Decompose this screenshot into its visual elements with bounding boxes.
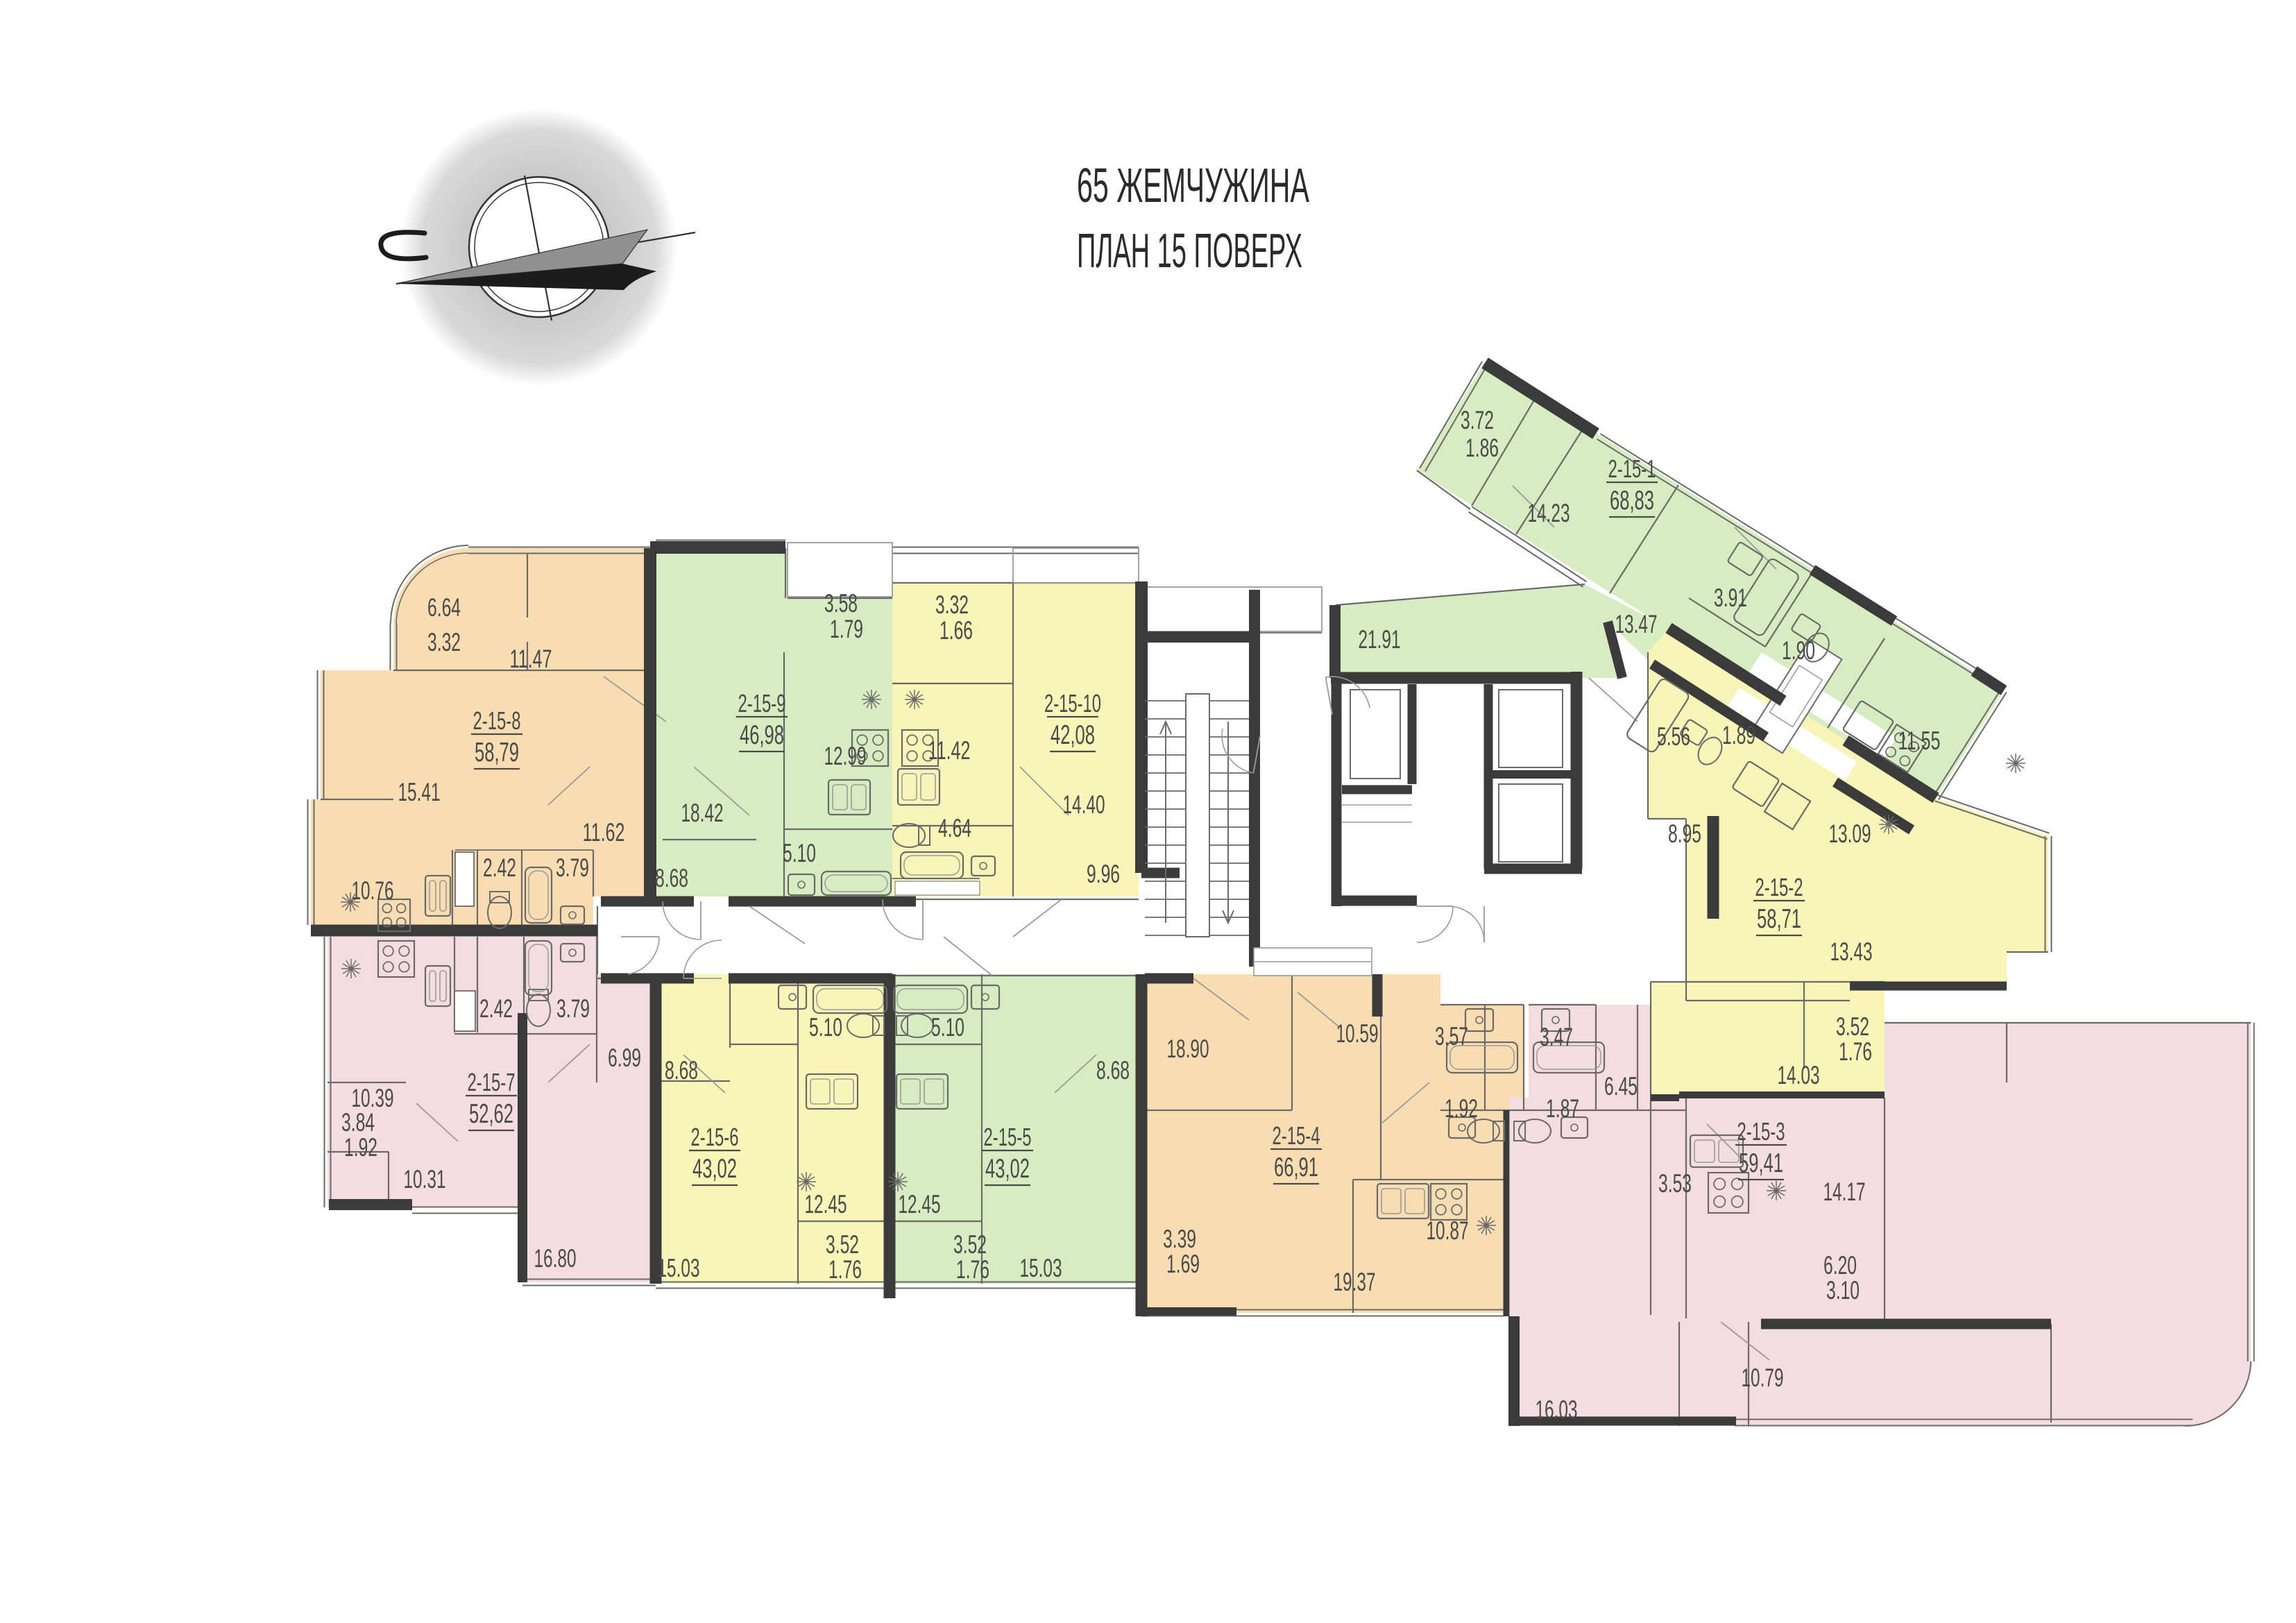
svg-text:6.64: 6.64 (427, 593, 461, 622)
svg-text:2-15-6: 2-15-6 (691, 1123, 739, 1151)
svg-text:43,02: 43,02 (985, 1154, 1030, 1184)
svg-text:15.03: 15.03 (1020, 1254, 1062, 1282)
svg-text:2-15-9: 2-15-9 (738, 689, 786, 717)
svg-text:11.62: 11.62 (583, 818, 625, 847)
svg-text:3.10: 3.10 (1826, 1276, 1860, 1305)
svg-text:12.45: 12.45 (805, 1190, 847, 1218)
svg-text:18.90: 18.90 (1167, 1035, 1209, 1063)
svg-text:12.45: 12.45 (899, 1190, 941, 1218)
svg-text:46,98: 46,98 (740, 720, 784, 750)
svg-text:8.68: 8.68 (1096, 1056, 1130, 1085)
svg-text:2-15-10: 2-15-10 (1044, 689, 1101, 717)
svg-text:59,41: 59,41 (1739, 1148, 1783, 1178)
svg-text:10.31: 10.31 (404, 1165, 446, 1193)
svg-text:5.56: 5.56 (1657, 722, 1690, 751)
svg-text:11.42: 11.42 (928, 736, 971, 765)
svg-text:8.68: 8.68 (655, 864, 688, 892)
svg-text:3.91: 3.91 (1714, 584, 1747, 612)
svg-text:43,02: 43,02 (692, 1154, 737, 1184)
svg-text:11.55: 11.55 (1898, 726, 1941, 755)
svg-text:5.10: 5.10 (783, 839, 816, 867)
svg-text:3.58: 3.58 (824, 589, 858, 618)
svg-text:2.42: 2.42 (483, 853, 516, 882)
svg-text:2-15-7: 2-15-7 (468, 1068, 516, 1096)
svg-text:5.10: 5.10 (809, 1013, 842, 1042)
svg-text:12.99: 12.99 (824, 742, 867, 770)
svg-text:52,62: 52,62 (469, 1099, 513, 1129)
svg-text:2-15-1: 2-15-1 (1608, 454, 1656, 483)
svg-text:14.40: 14.40 (1063, 790, 1105, 819)
svg-text:13.09: 13.09 (1829, 819, 1871, 848)
svg-text:6.99: 6.99 (608, 1044, 641, 1072)
svg-text:ПЛАН 15 ПОВЕРХ: ПЛАН 15 ПОВЕРХ (1077, 223, 1302, 278)
svg-text:3.52: 3.52 (826, 1230, 859, 1259)
svg-text:10.59: 10.59 (1336, 1019, 1379, 1048)
svg-text:3.53: 3.53 (1658, 1169, 1692, 1198)
svg-text:1.92: 1.92 (344, 1133, 377, 1162)
svg-text:42,08: 42,08 (1051, 720, 1095, 750)
svg-text:1.76: 1.76 (956, 1255, 989, 1284)
svg-text:3.39: 3.39 (1163, 1225, 1196, 1253)
svg-text:5.10: 5.10 (931, 1013, 964, 1042)
svg-text:2-15-3: 2-15-3 (1737, 1117, 1785, 1146)
svg-text:1.92: 1.92 (1445, 1094, 1478, 1123)
svg-text:1.90: 1.90 (1782, 636, 1815, 665)
svg-text:1.79: 1.79 (830, 615, 863, 643)
svg-text:2-15-8: 2-15-8 (473, 706, 521, 735)
svg-text:4.64: 4.64 (938, 814, 971, 842)
svg-text:16.03: 16.03 (1536, 1395, 1578, 1424)
svg-text:14.23: 14.23 (1528, 499, 1570, 527)
svg-text:1.76: 1.76 (1839, 1037, 1872, 1066)
svg-text:13.47: 13.47 (1615, 610, 1658, 638)
svg-text:3.47: 3.47 (1540, 1023, 1573, 1051)
svg-text:14.17: 14.17 (1823, 1178, 1866, 1206)
svg-text:58,79: 58,79 (475, 738, 519, 767)
svg-text:15.41: 15.41 (398, 778, 441, 806)
svg-text:1.76: 1.76 (828, 1255, 862, 1284)
svg-text:1.69: 1.69 (1166, 1250, 1200, 1278)
svg-text:3.84: 3.84 (341, 1108, 375, 1137)
svg-text:3.57: 3.57 (1435, 1022, 1468, 1051)
svg-text:2-15-5: 2-15-5 (984, 1123, 1032, 1151)
svg-text:11.47: 11.47 (510, 645, 552, 673)
svg-text:14.03: 14.03 (1778, 1061, 1820, 1089)
svg-text:3.79: 3.79 (556, 994, 590, 1023)
svg-text:68,83: 68,83 (1610, 486, 1654, 516)
svg-text:58,71: 58,71 (1757, 904, 1801, 934)
svg-text:2-15-4: 2-15-4 (1273, 1121, 1320, 1150)
svg-text:3.79: 3.79 (556, 853, 589, 882)
svg-text:10.87: 10.87 (1427, 1216, 1469, 1245)
svg-text:16.80: 16.80 (534, 1244, 577, 1273)
svg-text:6.45: 6.45 (1604, 1072, 1638, 1101)
svg-text:3.32: 3.32 (427, 628, 461, 656)
svg-text:18.42: 18.42 (681, 799, 724, 827)
svg-text:8.95: 8.95 (1668, 819, 1701, 848)
svg-text:19.37: 19.37 (1334, 1268, 1376, 1296)
svg-text:66,91: 66,91 (1274, 1153, 1318, 1182)
svg-text:1.86: 1.86 (1465, 434, 1499, 462)
svg-text:6.20: 6.20 (1823, 1251, 1857, 1280)
svg-text:3.52: 3.52 (1836, 1012, 1869, 1041)
svg-text:1.89: 1.89 (1722, 721, 1755, 749)
svg-text:21.91: 21.91 (1359, 625, 1401, 654)
svg-text:3.52: 3.52 (953, 1230, 987, 1259)
svg-text:2-15-2: 2-15-2 (1755, 873, 1803, 901)
svg-text:8.68: 8.68 (665, 1056, 698, 1085)
svg-text:1.66: 1.66 (939, 616, 973, 645)
svg-text:65 ЖЕМЧУЖИНА: 65 ЖЕМЧУЖИНА (1077, 158, 1309, 212)
svg-text:3.72: 3.72 (1461, 406, 1494, 434)
svg-text:13.43: 13.43 (1830, 937, 1873, 966)
svg-text:1.87: 1.87 (1546, 1094, 1579, 1123)
svg-text:9.96: 9.96 (1087, 860, 1120, 888)
svg-text:10.79: 10.79 (1742, 1363, 1784, 1392)
svg-text:10.76: 10.76 (352, 876, 394, 905)
svg-text:2.42: 2.42 (479, 994, 513, 1023)
svg-text:3.32: 3.32 (935, 590, 969, 619)
svg-text:15.03: 15.03 (658, 1254, 700, 1282)
